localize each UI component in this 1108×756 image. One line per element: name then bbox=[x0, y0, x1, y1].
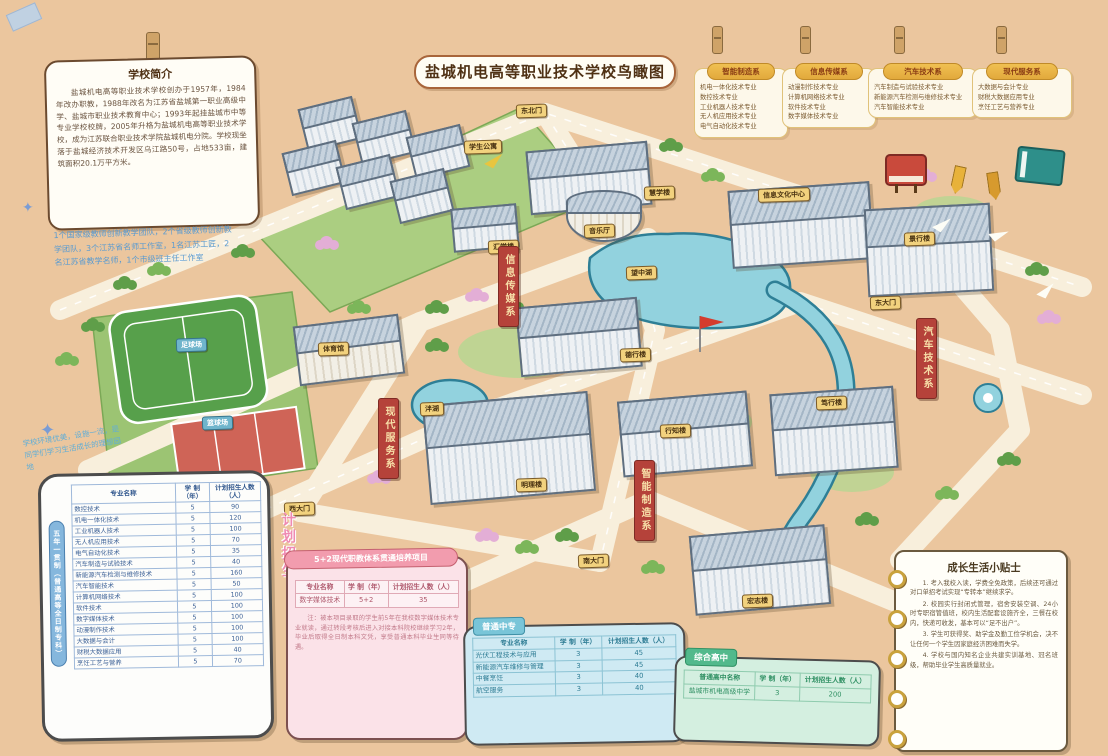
five-year-table-card: 五年一贯制（普通高等全日制专科） 专业名称 学 制（年） 计划招生人数（人） 数… bbox=[38, 470, 275, 742]
dept-name: 现代服务系 bbox=[986, 63, 1058, 80]
cell-plan: 70 bbox=[212, 655, 263, 667]
plaque-pond: 泮湖 bbox=[420, 402, 444, 417]
page-title: 盐城机电高等职业技术学校鸟瞰图 bbox=[414, 55, 676, 89]
cell-major: 烹饪工艺与营养 bbox=[74, 657, 178, 670]
plaque-jingxing: 景行楼 bbox=[904, 231, 935, 246]
fountain-spray bbox=[983, 393, 993, 403]
plaque-student-apartments: 学生公寓 bbox=[464, 139, 502, 154]
building-jingxing bbox=[864, 203, 994, 297]
gate-plaque-northeast: 东北门 bbox=[516, 103, 547, 118]
dept-card-modern-service: 现代服务系 大数据与会计专业财税大数据应用专业烹饪工艺与营养专业 bbox=[972, 68, 1072, 118]
bridge-program-title: 5+2现代职教体系贯通培养项目 bbox=[284, 547, 458, 569]
cell-plan: 100 bbox=[212, 633, 263, 645]
mascot-leg bbox=[895, 184, 898, 193]
gate-plaque-east: 东大门 bbox=[870, 295, 901, 310]
col-major: 专业名称 bbox=[71, 483, 175, 504]
cell-school: 盐城市机电高级中学 bbox=[684, 684, 756, 700]
cell-years: 5 bbox=[176, 546, 210, 558]
cell-years: 5 bbox=[177, 557, 211, 569]
cell-plan: 70 bbox=[210, 534, 261, 546]
cell-years: 5 bbox=[176, 502, 210, 514]
faculty-honors-note: 1个国家级教师创新教学团队，2个省级教师创新教学团队，3个江苏省名师工作室，1名… bbox=[53, 223, 234, 270]
building-dexing bbox=[515, 297, 643, 377]
dept-name: 信息传媒系 bbox=[795, 63, 863, 80]
cell-years: 5 bbox=[178, 634, 212, 646]
cell-years: 5 bbox=[176, 535, 210, 547]
major-item: 汽车智能技术专业 bbox=[874, 103, 972, 113]
plaque-huixue: 慧学楼 bbox=[644, 185, 675, 200]
table-body: 光伏工程技术与应用 3 45 新能源汽车维修与管理 3 45 中餐烹饪 3 40 bbox=[473, 647, 677, 698]
cell-years: 5 bbox=[177, 590, 211, 602]
major-item: 计算机网络技术专业 bbox=[788, 93, 870, 103]
major-list: 大数据与会计专业财税大数据应用专业烹饪工艺与营养专业 bbox=[978, 83, 1066, 112]
ribbon-modern-service-dept: 现代服务系 bbox=[378, 398, 399, 479]
spiral-ring-icon bbox=[888, 610, 906, 628]
book-page bbox=[1020, 151, 1028, 177]
major-item: 软件技术专业 bbox=[788, 103, 870, 113]
dept-name: 智能制造系 bbox=[707, 63, 775, 80]
spiral-ring-icon bbox=[888, 570, 906, 588]
intro-title: 学校简介 bbox=[55, 64, 245, 85]
major-item: 大数据与会计专业 bbox=[978, 83, 1066, 93]
table-row: 数字媒体技术 5+2 35 bbox=[296, 594, 459, 607]
col-years: 学 制（年） bbox=[555, 636, 602, 649]
book-page bbox=[889, 176, 923, 182]
cell-years: 5 bbox=[177, 579, 211, 591]
plaque-lake: 望中湖 bbox=[626, 265, 657, 280]
tip-item: 2. 校园实行封闭式管理，宿舍安装空调、24小时专职宿管值班，校内生活配套设施齐… bbox=[910, 600, 1058, 628]
cell-plan: 40 bbox=[602, 682, 677, 695]
clothespin-icon bbox=[712, 26, 723, 54]
star-icon bbox=[22, 200, 34, 216]
major-item: 新能源汽车检测与维修技术专业 bbox=[874, 93, 972, 103]
cell-years: 5 bbox=[178, 656, 212, 668]
plaque-basketball-court: 篮球场 bbox=[202, 415, 233, 430]
major-item: 烹饪工艺与营养专业 bbox=[978, 103, 1066, 113]
cell-years: 5 bbox=[177, 568, 211, 580]
plaque-hongzhi: 宏志楼 bbox=[742, 593, 773, 608]
plaque-gym: 体育馆 bbox=[318, 341, 349, 356]
major-item: 工业机器人技术专业 bbox=[700, 103, 782, 113]
clothespin-icon bbox=[894, 26, 905, 54]
bridge-note: 注：被本项目录取的学生前5年在我校数字媒体技术专业就读，通过转段考核后进入对接本… bbox=[295, 614, 459, 652]
cell-plan: 160 bbox=[211, 567, 262, 579]
secondary-vocational-card: 普通中专 专业名称 学 制（年） 计划招生人数（人） 光伏工程技术与应用 3 4… bbox=[463, 622, 687, 746]
ribbon-smart-manufacturing-dept: 智能制造系 bbox=[634, 460, 655, 541]
plaque-music-hall: 音乐厅 bbox=[584, 223, 615, 238]
comprehensive-tag: 综合高中 bbox=[685, 648, 737, 667]
mascot-teal-book-icon bbox=[1014, 146, 1066, 187]
cell-years: 3 bbox=[555, 660, 602, 673]
table-row: 航空服务 3 40 bbox=[474, 682, 677, 697]
cell-years: 3 bbox=[555, 648, 602, 661]
bridge-table: 专业名称 学 制（年） 计划招生人数（人） 数字媒体技术 5+2 35 bbox=[295, 580, 459, 608]
spiral-ring-icon bbox=[888, 730, 906, 748]
cell-plan: 100 bbox=[211, 611, 262, 623]
cell-years: 5+2 bbox=[344, 594, 388, 607]
clothespin-icon bbox=[996, 26, 1007, 54]
ribbon-auto-tech-dept: 汽车技术系 bbox=[916, 318, 937, 399]
ribbon-info-media-dept: 信息传媒系 bbox=[498, 246, 519, 327]
table-row: 烹饪工艺与营养 5 70 bbox=[74, 655, 263, 669]
comprehensive-table: 普通高中名称 学 制（年） 计划招生人数（人） 盐城市机电高级中学 3 200 bbox=[683, 670, 872, 704]
cell-years: 5 bbox=[178, 612, 212, 624]
cell-years: 3 bbox=[556, 683, 603, 696]
cell-plan: 35 bbox=[210, 545, 261, 557]
dept-name: 汽车技术系 bbox=[883, 63, 963, 80]
tips-title: 成长生活小贴士 bbox=[910, 560, 1058, 575]
major-list: 汽车制造与试验技术专业新能源汽车检测与维修技术专业汽车智能技术专业 bbox=[874, 83, 972, 112]
tips-list: 1. 考入我校入读，学费全免政策，后续还可通过对口单招考试实现“专转本”继续求学… bbox=[910, 579, 1058, 670]
cell-plan: 100 bbox=[212, 622, 263, 634]
cell-plan: 35 bbox=[388, 594, 458, 607]
table-body: 数控技术 5 90 机电一体化技术 5 120 工业机器人技术 5 100 bbox=[72, 501, 264, 669]
col-years: 学 制（年） bbox=[344, 581, 388, 594]
cell-years: 5 bbox=[177, 601, 211, 613]
major-item: 电气自动化技术专业 bbox=[700, 122, 782, 132]
plaque-football-field: 足球场 bbox=[176, 337, 207, 352]
plaque-duxing: 笃行楼 bbox=[816, 395, 847, 410]
mascot-red-book-icon bbox=[885, 154, 927, 186]
major-list: 机电一体化技术专业数控技术专业工业机器人技术专业无人机应用技术专业电气自动化技术… bbox=[700, 83, 782, 132]
plaque-info-center: 信息文化中心 bbox=[758, 187, 810, 203]
plaque-dexing: 德行楼 bbox=[620, 347, 651, 362]
five-year-table: 专业名称 学 制（年） 计划招生人数（人） 数控技术 5 90 机电一体化技术 bbox=[71, 481, 264, 670]
mascot-leg bbox=[914, 184, 917, 193]
roof bbox=[566, 190, 642, 214]
cell-years: 5 bbox=[178, 623, 212, 635]
dept-card-auto-tech: 汽车技术系 汽车制造与试验技术专业新能源汽车检测与维修技术专业汽车智能技术专业 bbox=[868, 68, 978, 118]
tip-item: 3. 学生可获得奖、助学金及勤工俭学机会，决不让任何一个学生因家庭经济困难而失学… bbox=[910, 630, 1058, 649]
tip-item: 1. 考入我校入读，学费全免政策，后续还可通过对口单招考试实现“专转本”继续求学… bbox=[910, 579, 1058, 598]
major-item: 财税大数据应用专业 bbox=[978, 93, 1066, 103]
five-year-side-label: 五年一贯制（普通高等全日制专科） bbox=[48, 521, 67, 667]
cell-plan: 40 bbox=[210, 556, 261, 568]
building-mingli bbox=[422, 391, 596, 505]
major-item: 汽车制造与试验技术专业 bbox=[874, 83, 972, 93]
comprehensive-highschool-card: 综合高中 普通高中名称 学 制（年） 计划招生人数（人） 盐城市机电高级中学 3… bbox=[673, 655, 881, 746]
secondary-tag: 普通中专 bbox=[473, 617, 525, 636]
col-plan: 计划招生人数（人） bbox=[388, 581, 458, 594]
cell-years: 5 bbox=[176, 513, 210, 525]
roof bbox=[450, 203, 518, 229]
col-major: 专业名称 bbox=[296, 581, 345, 594]
spiral-ring-icon bbox=[888, 690, 906, 708]
tip-item: 4. 学校与国内知名企业共建实训基地、冠名班级，帮助毕业学生高质量就业。 bbox=[910, 651, 1058, 670]
major-item: 数字媒体技术专业 bbox=[788, 112, 870, 122]
cell-plan: 100 bbox=[211, 589, 262, 601]
major-list: 动漫制作技术专业计算机网络技术专业软件技术专业数字媒体技术专业 bbox=[788, 83, 870, 122]
major-item: 机电一体化技术专业 bbox=[700, 83, 782, 93]
cell-years: 5 bbox=[178, 645, 212, 657]
cell-plan: 40 bbox=[212, 644, 263, 656]
school-intro-card: 学校简介 盐城机电高等职业技术学校创办于1957年，1984年改办职教，1988… bbox=[44, 55, 260, 230]
col-years: 学 制（年） bbox=[175, 483, 209, 503]
cell-plan: 50 bbox=[211, 578, 262, 590]
bridge-program-card: 5+2现代职教体系贯通培养项目 专业名称 学 制（年） 计划招生人数（人） 数字… bbox=[286, 556, 468, 740]
clothespin-icon bbox=[800, 26, 811, 54]
star-icon bbox=[40, 420, 55, 441]
cell-plan: 100 bbox=[210, 523, 261, 535]
cell-years: 3 bbox=[755, 686, 800, 701]
cell-major: 航空服务 bbox=[474, 684, 556, 697]
cell-plan: 200 bbox=[799, 687, 871, 703]
poster-canvas: 东北门 东大门 西大门 南大门 学生公寓 汇学楼 慧学楼 音乐厅 信息文化中心 … bbox=[0, 0, 1108, 756]
cell-major: 数字媒体技术 bbox=[296, 594, 345, 607]
cell-plan: 120 bbox=[210, 512, 261, 524]
plaque-mingli: 明理楼 bbox=[516, 477, 547, 492]
major-item: 无人机应用技术专业 bbox=[700, 112, 782, 122]
table-header-row: 专业名称 学 制（年） 计划招生人数（人） bbox=[296, 581, 459, 594]
dept-card-info-media: 信息传媒系 动漫制作技术专业计算机网络技术专业软件技术专业数字媒体技术专业 bbox=[782, 68, 876, 128]
spiral-ring-icon bbox=[888, 650, 906, 668]
cell-plan: 90 bbox=[209, 501, 260, 513]
secondary-table: 专业名称 学 制（年） 计划招生人数（人） 光伏工程技术与应用 3 45 新能源… bbox=[472, 634, 677, 698]
intro-body: 盐城机电高等职业技术学校创办于1957年，1984年改办职教，1988年改名为江… bbox=[56, 83, 248, 170]
cell-years: 3 bbox=[555, 672, 602, 685]
cell-years: 5 bbox=[176, 524, 210, 536]
dept-card-smart-manufacturing: 智能制造系 机电一体化技术专业数控技术专业工业机器人技术专业无人机应用技术专业电… bbox=[694, 68, 788, 138]
gate-plaque-south: 南大门 bbox=[578, 553, 609, 568]
col-years: 学 制（年） bbox=[755, 672, 800, 687]
table-body: 数字媒体技术 5+2 35 bbox=[296, 594, 459, 607]
col-plan: 计划招生人数（人） bbox=[209, 482, 261, 502]
cell-plan: 100 bbox=[211, 600, 262, 612]
major-item: 动漫制作技术专业 bbox=[788, 83, 870, 93]
plaque-xingzhi: 行知楼 bbox=[660, 423, 691, 438]
major-item: 数控技术专业 bbox=[700, 93, 782, 103]
tips-card: 成长生活小贴士 1. 考入我校入读，学费全免政策，后续还可通过对口单招考试实现“… bbox=[894, 550, 1068, 752]
